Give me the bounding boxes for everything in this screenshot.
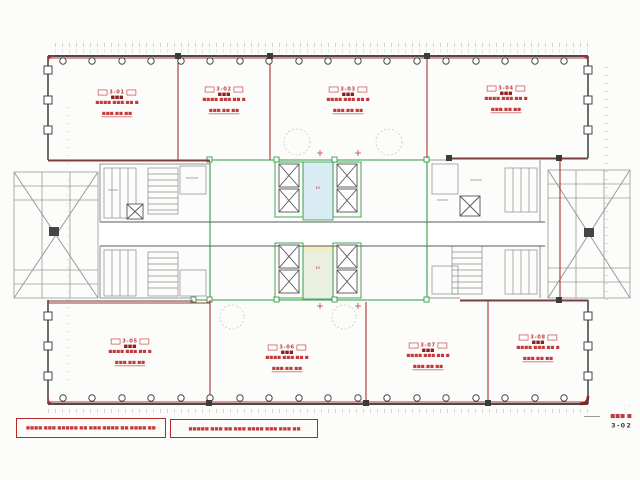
label-box-icon <box>519 334 529 340</box>
label-box-icon <box>438 342 448 348</box>
label-box-icon <box>409 342 419 348</box>
room-tsubo: ■■■.■■ ■■ <box>115 361 145 367</box>
legend-dots: · · · · <box>576 404 632 409</box>
legend-scale: ■■■ ■ <box>610 413 632 419</box>
label-box-icon <box>234 86 244 92</box>
dimension-ticks-bottom <box>48 409 588 413</box>
room-tsubo: ■■■.■■ ■■ <box>209 109 239 115</box>
sheet-number: 3-02 <box>568 422 632 429</box>
label-box-icon <box>268 344 278 350</box>
floor-plan-drawing <box>0 0 640 480</box>
room-label: 3-03 ■■■ ■■■■ ■■■.■■ ■ ■■■.■■ ■■ <box>316 86 380 115</box>
room-tsubo: ■■■.■■ ■■ <box>523 357 553 363</box>
room-label: 3-02 ■■■ ■■■■ ■■■.■■ ■ ■■■.■■ ■■ <box>192 86 256 115</box>
label-box-icon <box>548 334 558 340</box>
label-box-icon <box>487 85 497 91</box>
room-tsubo: ■■■.■■ ■■ <box>102 112 132 118</box>
label-box-icon <box>297 344 307 350</box>
label-box-icon <box>111 338 121 344</box>
stair-lower-left <box>148 252 178 296</box>
legend-dash-icon <box>584 416 600 417</box>
room-label: 3-04 ■■■ ■■■■ ■■■.■■ ■ ■■■.■■ ■■ <box>474 85 538 114</box>
title-block-legend: · · · · ■■■ ■ 3-02 <box>552 404 632 431</box>
label-box-icon <box>127 89 137 95</box>
note-text: ■■■■ ■■■ ■■■■■ ■■ ■■■ ■■■■ ■■ ■■■■ ■■ <box>26 426 156 431</box>
elevator-lobby-label: EV <box>309 266 327 270</box>
elevator-lobby-label: EV <box>309 186 327 190</box>
dimension-ticks-left <box>66 100 70 380</box>
room-tsubo: ■■■.■■ ■■ <box>333 109 363 115</box>
room-label: 3-01 ■■■ ■■■■ ■■■.■■ ■ ■■■.■■ ■■ <box>85 89 149 118</box>
label-box-icon <box>329 86 339 92</box>
room-tsubo: ■■■.■■ ■■ <box>413 365 443 371</box>
label-box-icon <box>98 89 108 95</box>
dimension-ticks-top <box>55 43 590 47</box>
room-label: 3-08 ■■■ ■■■■ ■■■.■■ ■ ■■■.■■ ■■ <box>506 334 570 363</box>
left-wing-brace <box>14 172 98 298</box>
room-tsubo: ■■■.■■ ■■ <box>272 367 302 373</box>
room-label: 3-07 ■■■ ■■■■ ■■■.■■ ■ ■■■.■■ ■■ <box>396 342 460 371</box>
note-box-2: ■■■■■ ■■■ ■■ ■■■ ■■■■ ■■■ ■■■ ■■ <box>170 419 318 438</box>
label-box-icon <box>140 338 150 344</box>
dimension-ticks-right <box>604 60 608 300</box>
label-box-icon <box>358 86 368 92</box>
stair-upper-left <box>148 168 178 214</box>
label-box-icon <box>516 85 526 91</box>
floor-plan-page: 3-01 ■■■ ■■■■ ■■■.■■ ■ ■■■.■■ ■■ 3-02 ■■… <box>0 0 640 480</box>
dimension-ticks-top-2 <box>55 49 590 53</box>
note-text: ■■■■■ ■■■ ■■ ■■■ ■■■■ ■■■ ■■■ ■■ <box>188 426 300 431</box>
label-box-icon <box>205 86 215 92</box>
room-label: 3-05 ■■■ ■■■■ ■■■.■■ ■ ■■■.■■ ■■ <box>98 338 162 367</box>
room-label: 3-06 ■■■ ■■■■ ■■■.■■ ■ ■■■.■■ ■■ <box>255 344 319 373</box>
note-box-1: ■■■■ ■■■ ■■■■■ ■■ ■■■ ■■■■ ■■ ■■■■ ■■ <box>16 418 166 438</box>
room-tsubo: ■■■.■■ ■■ <box>491 108 521 114</box>
